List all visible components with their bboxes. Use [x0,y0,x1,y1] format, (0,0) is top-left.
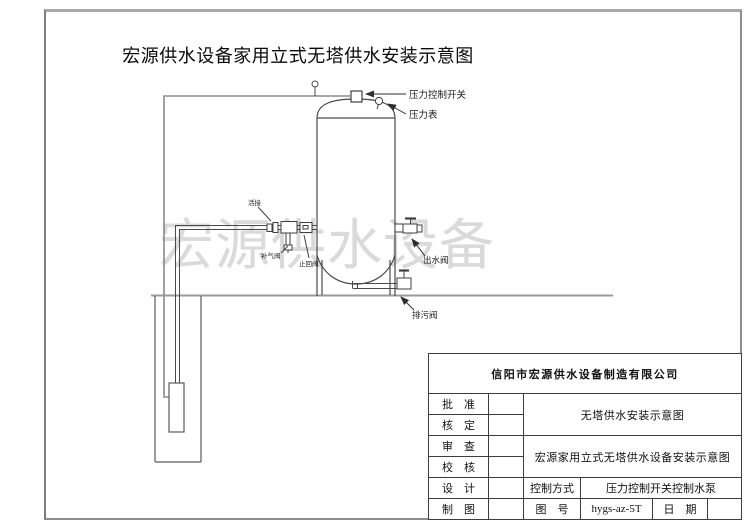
label-check-valve: 止回阀 [299,259,319,268]
signature-cell [489,478,524,499]
leader-outlet-valve [412,239,425,256]
outlet-valve [395,219,422,234]
signature-cell [489,415,524,436]
row-label-verify: 核 定 [429,415,489,436]
leader-union [258,207,271,221]
date-value-cell [708,499,742,520]
row-label-approve: 批 准 [429,394,489,415]
check-valve [300,223,312,233]
leader-check-valve [304,235,309,258]
drawing-title: 宏源供水设备家用立式无塔供水安装示意图 [118,42,478,68]
drain-valve [397,271,411,290]
control-cable [164,96,350,397]
control-mode-value: 压力控制开关控制水泵 [581,478,742,499]
label-drain-valve: 排污阀 [412,310,438,320]
signature-cell [489,394,524,415]
figure-no-label: 图 号 [524,499,581,520]
row-label-check: 校 核 [429,457,489,478]
air-valve [281,222,297,254]
control-mode-label: 控制方式 [524,478,581,499]
signature-cell [489,457,524,478]
label-outlet-valve: 出水阀 [423,255,449,265]
label-union: 活接 [248,198,262,207]
tank-bottom-head [317,255,395,284]
drawing-page: 宏源供水设备家用立式无塔供水安装示意图 宏源供水设备 [0,0,750,530]
label-air-valve: 补气阀 [261,251,281,260]
label-pressure-gauge: 压力表 [409,109,438,121]
pressure-switch [351,91,362,102]
pump [169,383,184,432]
union-fitting [267,223,278,233]
vent-fitting-icon [312,81,318,96]
row-label-review: 审 查 [429,436,489,457]
pressure-gauge-icon [375,97,382,109]
figure-no-value: hygs-az-5T [581,499,653,520]
tank [317,99,395,296]
date-label: 日 期 [653,499,708,520]
drawing-name-1: 无塔供水安装示意图 [524,394,742,436]
tank-shell [317,99,395,296]
well [155,296,201,462]
title-block: 信阳市宏源供水设备制造有限公司 批 准 无塔供水安装示意图 核 定 审 查 宏源… [428,353,742,520]
signature-cell [489,499,524,520]
row-label-design: 设 计 [429,478,489,499]
row-label-draft: 制 图 [429,499,489,520]
drawing-name-2: 宏源家用立式无塔供水设备安装示意图 [524,436,742,478]
signature-cell [489,436,524,457]
suction-pipe [176,226,318,384]
company-name: 信阳市宏源供水设备制造有限公司 [429,354,742,394]
leader-drain-valve [401,297,414,310]
label-pressure-switch: 压力控制开关 [409,89,467,101]
leader-pressure-gauge [388,104,406,114]
